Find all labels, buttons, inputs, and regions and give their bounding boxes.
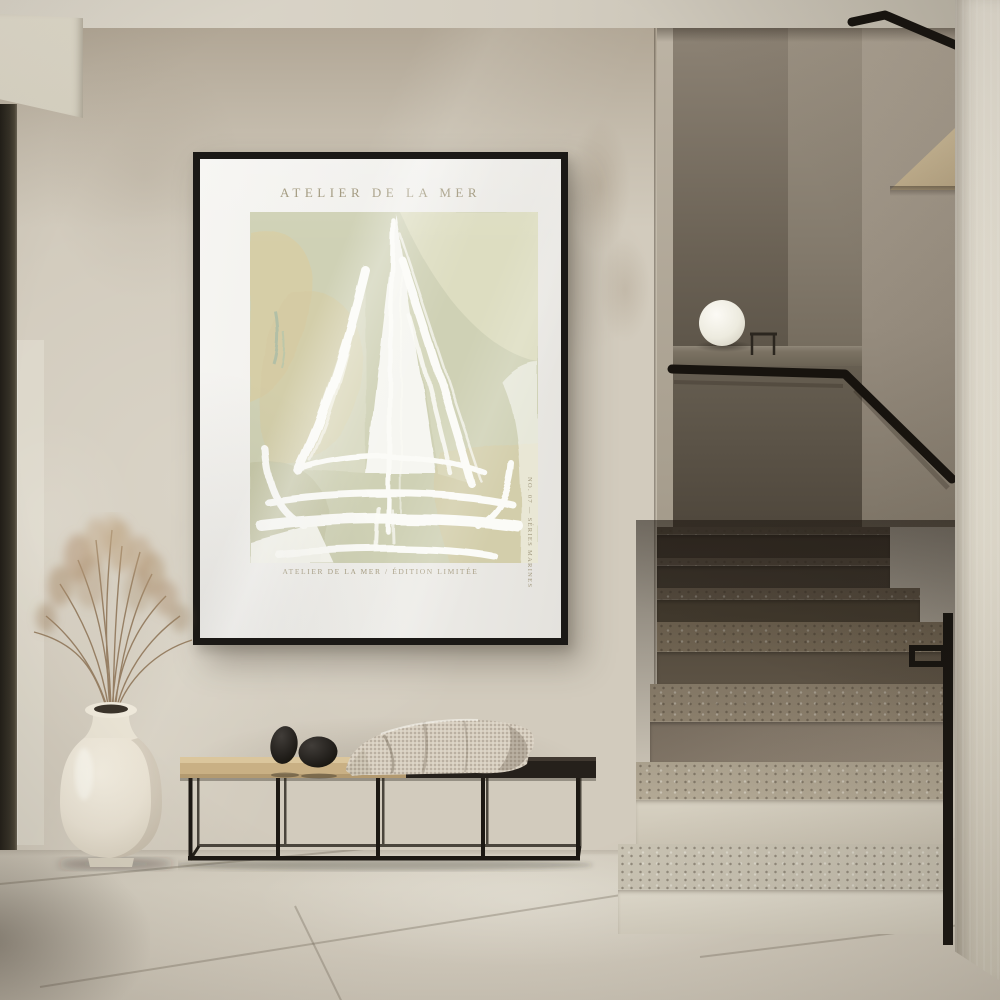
poster-frame: ATELIER DE LA MER	[193, 152, 568, 645]
stone-shadow	[301, 774, 337, 779]
dried-grass-vase	[20, 512, 200, 872]
grass-plumes	[36, 514, 190, 633]
vase-highlight	[75, 748, 93, 800]
vase-foot	[88, 858, 134, 867]
foreground-wall	[955, 0, 1000, 985]
wall-streaks	[955, 0, 1000, 985]
knit-blanket	[346, 720, 534, 776]
lamp-stand	[750, 334, 777, 355]
poster-title: ATELIER DE LA MER	[200, 185, 561, 201]
poster-edition-note: NO. 07 — SÉRIES MARINES	[526, 477, 533, 599]
rail-bracket	[912, 648, 944, 664]
vase-opening	[94, 705, 128, 714]
bench-back-frame	[197, 776, 582, 847]
handrail	[600, 0, 1000, 1000]
sailboat-artwork	[250, 212, 538, 563]
stone-shadow	[271, 773, 299, 778]
poster-caption: ATELIER DE LA MER / ÉDITION LIMITÉE	[200, 567, 561, 576]
door-frame	[0, 104, 17, 850]
bench-floor-shadow	[178, 860, 593, 871]
hallway-scene: ATELIER DE LA MER	[0, 0, 1000, 1000]
bench	[178, 712, 598, 872]
